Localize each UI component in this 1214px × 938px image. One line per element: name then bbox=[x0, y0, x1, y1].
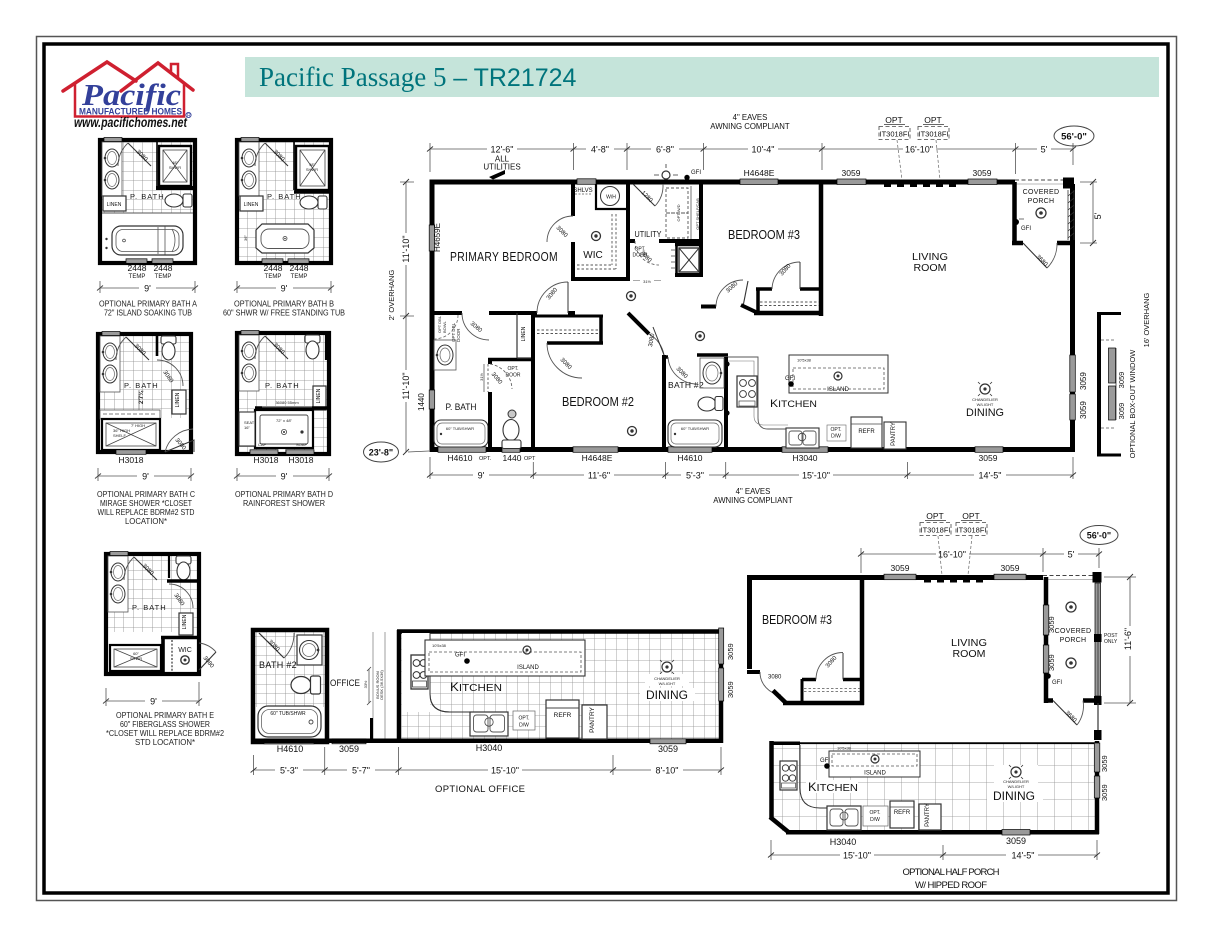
svg-text:OFFICE: OFFICE bbox=[330, 678, 360, 689]
svg-text:5'-7": 5'-7" bbox=[352, 766, 370, 776]
svg-text:OPT.: OPT. bbox=[869, 810, 880, 816]
svg-text:D/W: D/W bbox=[831, 434, 841, 440]
svg-text:72" x 48": 72" x 48" bbox=[276, 418, 293, 423]
svg-text:16'-10": 16'-10" bbox=[905, 145, 933, 155]
svg-text:5'-3": 5'-3" bbox=[686, 471, 704, 481]
svg-text:PORCH: PORCH bbox=[1060, 637, 1087, 644]
svg-text:PANTRY: PANTRY bbox=[589, 706, 596, 732]
svg-text:OPTIONAL PRIMARY BATH C: OPTIONAL PRIMARY BATH C bbox=[97, 490, 195, 499]
svg-text:8'-10": 8'-10" bbox=[656, 766, 679, 776]
svg-text:IT3018FI: IT3018FI bbox=[918, 130, 948, 139]
svg-text:3059: 3059 bbox=[339, 744, 359, 754]
svg-text:3059: 3059 bbox=[1117, 372, 1126, 389]
svg-text:11'-6": 11'-6" bbox=[588, 471, 610, 481]
svg-text:10'5x38: 10'5x38 bbox=[432, 643, 447, 648]
svg-text:31½: 31½ bbox=[643, 279, 651, 284]
svg-text:4'-8": 4'-8" bbox=[591, 145, 609, 155]
svg-text:9': 9' bbox=[478, 471, 485, 481]
svg-text:3059: 3059 bbox=[1006, 836, 1026, 846]
svg-text:ROOM: ROOM bbox=[914, 262, 947, 274]
svg-text:3059: 3059 bbox=[726, 643, 735, 660]
svg-text:2' OVERHANG: 2' OVERHANG bbox=[387, 270, 396, 321]
svg-text:TEMP: TEMP bbox=[129, 274, 146, 280]
svg-text:P. BATH: P. BATH bbox=[267, 192, 302, 201]
svg-text:12'-6": 12'-6" bbox=[491, 145, 514, 155]
svg-text:PORCH: PORCH bbox=[1028, 198, 1055, 205]
svg-text:14'-5": 14'-5" bbox=[979, 471, 1002, 481]
svg-text:www.pacifichomes.net: www.pacifichomes.net bbox=[74, 115, 187, 130]
svg-text:LINEN: LINEN bbox=[182, 614, 188, 629]
svg-text:56'-0": 56'-0" bbox=[1061, 132, 1087, 143]
svg-text:H3040: H3040 bbox=[792, 453, 817, 463]
svg-text:STD LOCATION*: STD LOCATION* bbox=[135, 738, 196, 747]
svg-text:REFR: REFR bbox=[894, 810, 911, 816]
svg-text:3059: 3059 bbox=[658, 744, 678, 754]
svg-text:H3018: H3018 bbox=[253, 455, 278, 465]
svg-text:BATH #2: BATH #2 bbox=[259, 660, 297, 670]
svg-text:LINEN: LINEN bbox=[175, 392, 181, 407]
svg-text:P. BATH: P. BATH bbox=[446, 402, 477, 412]
svg-text:9': 9' bbox=[281, 472, 288, 482]
svg-text:ISLAND: ISLAND bbox=[864, 771, 886, 777]
svg-text:31½: 31½ bbox=[479, 372, 484, 380]
svg-text:H3040: H3040 bbox=[830, 837, 857, 847]
svg-text:GFI: GFI bbox=[455, 653, 465, 659]
svg-text:16": 16" bbox=[244, 425, 250, 430]
svg-text:REFR: REFR bbox=[554, 712, 572, 719]
svg-text:6'-8": 6'-8" bbox=[656, 145, 674, 155]
svg-text:10'5x38: 10'5x38 bbox=[797, 358, 812, 363]
svg-text:IT3018FI: IT3018FI bbox=[956, 526, 986, 535]
svg-text:BOWL: BOWL bbox=[442, 320, 447, 333]
svg-text:DINING: DINING bbox=[993, 789, 1035, 803]
svg-text:16' OVERHANG: 16' OVERHANG bbox=[1142, 292, 1151, 347]
svg-text:KITCHEN: KITCHEN bbox=[770, 398, 817, 410]
svg-text:*CLOSET WILL REPLACE BDRM#2: *CLOSET WILL REPLACE BDRM#2 bbox=[106, 729, 224, 738]
svg-text:MIRAGE SHOWER *CLOSET: MIRAGE SHOWER *CLOSET bbox=[100, 499, 192, 508]
svg-text:CAP: CAP bbox=[258, 442, 267, 447]
svg-text:3059: 3059 bbox=[1079, 372, 1088, 390]
svg-text:P. BATH: P. BATH bbox=[265, 381, 300, 390]
svg-text:P. BATH: P. BATH bbox=[132, 603, 167, 612]
svg-text:H4610: H4610 bbox=[677, 453, 702, 463]
svg-text:W/ HIPPED ROOF: W/ HIPPED ROOF bbox=[915, 880, 987, 891]
svg-text:OPT.: OPT. bbox=[479, 456, 492, 462]
svg-text:11'-10": 11'-10" bbox=[401, 235, 411, 262]
svg-text:4" EAVES: 4" EAVES bbox=[733, 113, 768, 122]
svg-text:4" EAVES: 4" EAVES bbox=[736, 487, 771, 496]
svg-text:DOOR: DOOR bbox=[456, 328, 461, 342]
svg-text:60" SHWR W/ FREE STANDING TUB: 60" SHWR W/ FREE STANDING TUB bbox=[223, 309, 345, 318]
svg-text:OPT.: OPT. bbox=[507, 366, 518, 372]
svg-text:10'5x38: 10'5x38 bbox=[837, 746, 852, 751]
svg-text:LOCATION*: LOCATION* bbox=[125, 517, 168, 526]
svg-text:15'-10": 15'-10" bbox=[491, 766, 519, 776]
svg-text:10'-4": 10'-4" bbox=[752, 145, 775, 155]
svg-text:3059: 3059 bbox=[726, 681, 735, 698]
svg-text:3059: 3059 bbox=[1100, 755, 1109, 772]
svg-text:16'-10": 16'-10" bbox=[938, 550, 966, 560]
svg-text:REFR: REFR bbox=[858, 429, 875, 435]
svg-text:3059: 3059 bbox=[842, 168, 861, 178]
svg-text:ONLY: ONLY bbox=[1104, 639, 1118, 645]
svg-text:COVERED: COVERED bbox=[1023, 189, 1060, 196]
svg-text:7' HIGH: 7' HIGH bbox=[131, 423, 145, 428]
svg-text:H4610: H4610 bbox=[447, 453, 472, 463]
svg-text:15'-10": 15'-10" bbox=[843, 851, 871, 861]
svg-text:OPTIONAL HALF PORCH: OPTIONAL HALF PORCH bbox=[903, 867, 1000, 878]
svg-text:60" TUB/SHWR: 60" TUB/SHWR bbox=[681, 426, 709, 431]
svg-text:H4648E: H4648E bbox=[582, 453, 613, 463]
svg-text:H3018: H3018 bbox=[288, 455, 313, 465]
svg-text:1440: 1440 bbox=[503, 453, 522, 463]
svg-text:P. BATH: P. BATH bbox=[130, 192, 165, 201]
svg-text:60" FIBERGLASS SHOWER: 60" FIBERGLASS SHOWER bbox=[120, 720, 210, 729]
svg-text:SHLVS: SHLVS bbox=[573, 188, 592, 194]
svg-text:5': 5' bbox=[1093, 212, 1103, 219]
svg-text:W/H: W/H bbox=[606, 195, 616, 201]
svg-text:SHWR: SHWR bbox=[169, 165, 181, 170]
svg-text:H3040: H3040 bbox=[476, 743, 503, 753]
svg-text:9': 9' bbox=[281, 284, 288, 294]
svg-text:2448: 2448 bbox=[154, 263, 173, 273]
svg-text:COVERED: COVERED bbox=[1055, 628, 1092, 635]
svg-text:D/W: D/W bbox=[519, 723, 529, 729]
svg-text:W/LIGHT: W/LIGHT bbox=[659, 681, 676, 686]
svg-text:UTILITY: UTILITY bbox=[635, 230, 663, 239]
svg-text:5': 5' bbox=[1041, 145, 1048, 155]
svg-text:BEDROOM #2: BEDROOM #2 bbox=[562, 395, 634, 409]
svg-text:11'-10": 11'-10" bbox=[401, 372, 411, 399]
svg-text:14'-5": 14'-5" bbox=[1012, 851, 1035, 861]
svg-text:LINEN: LINEN bbox=[521, 326, 527, 341]
svg-text:LINEN: LINEN bbox=[107, 202, 122, 208]
svg-text:LINEN: LINEN bbox=[316, 388, 322, 403]
svg-text:3059: 3059 bbox=[1001, 563, 1020, 573]
svg-text:P. BATH: P. BATH bbox=[124, 381, 159, 390]
svg-text:SHWR: SHWR bbox=[130, 656, 142, 661]
svg-text:DOOR: DOOR bbox=[633, 253, 648, 259]
svg-text:Pacific Passage 5 – TR21724: Pacific Passage 5 – TR21724 bbox=[259, 62, 577, 92]
svg-text:GFI: GFI bbox=[785, 376, 795, 382]
svg-text:3059: 3059 bbox=[1047, 654, 1056, 671]
svg-text:SHWR: SHWR bbox=[306, 167, 318, 172]
svg-text:3059: 3059 bbox=[1117, 403, 1126, 420]
svg-text:36": 36" bbox=[243, 235, 248, 241]
svg-text:KITCHEN: KITCHEN bbox=[450, 680, 502, 694]
svg-text:56'-0": 56'-0" bbox=[1087, 531, 1111, 541]
svg-text:72" ISLAND SOAKING TUB: 72" ISLAND SOAKING TUB bbox=[104, 309, 192, 318]
svg-text:DESK (36.5X36): DESK (36.5X36) bbox=[379, 670, 384, 700]
svg-text:H4610: H4610 bbox=[277, 744, 304, 754]
svg-text:PRIMARY BEDROOM: PRIMARY BEDROOM bbox=[450, 250, 558, 264]
svg-text:DINING: DINING bbox=[966, 407, 1004, 419]
svg-text:OPTIONAL PRIMARY BATH D: OPTIONAL PRIMARY BATH D bbox=[235, 490, 333, 499]
svg-text:BATH #2: BATH #2 bbox=[668, 380, 704, 390]
svg-text:H4648E: H4648E bbox=[744, 168, 775, 178]
svg-text:IT3018FI: IT3018FI bbox=[920, 526, 950, 535]
svg-text:IT3018FI: IT3018FI bbox=[879, 130, 909, 139]
svg-text:OPT: OPT bbox=[962, 511, 979, 521]
svg-text:AWNING COMPLIANT: AWNING COMPLIANT bbox=[713, 496, 793, 505]
svg-text:H3018: H3018 bbox=[118, 455, 143, 465]
svg-text:3080: 3080 bbox=[768, 675, 782, 681]
svg-text:60" TUB/SHWR: 60" TUB/SHWR bbox=[446, 426, 474, 431]
svg-text:23'-8": 23'-8" bbox=[369, 448, 393, 458]
svg-text:9': 9' bbox=[142, 472, 149, 482]
svg-text:TEMP: TEMP bbox=[155, 274, 172, 280]
svg-text:GFI: GFI bbox=[820, 758, 830, 764]
svg-text:33½: 33½ bbox=[363, 680, 368, 688]
svg-text:OPT.: OPT. bbox=[518, 716, 529, 722]
svg-text:TEMP: TEMP bbox=[265, 274, 282, 280]
svg-text:WILL REPLACE BDRM#2 STD: WILL REPLACE BDRM#2 STD bbox=[98, 508, 195, 517]
svg-text:ISLAND: ISLAND bbox=[517, 665, 539, 671]
svg-text:UTILITIES: UTILITIES bbox=[483, 163, 520, 172]
svg-text:2448: 2448 bbox=[128, 263, 147, 273]
svg-text:OPT: OPT bbox=[524, 456, 536, 462]
svg-text:OPTIONAL OFFICE: OPTIONAL OFFICE bbox=[435, 784, 525, 795]
svg-text:5': 5' bbox=[1068, 550, 1075, 560]
svg-text:9': 9' bbox=[150, 697, 157, 707]
svg-text:OPT.: OPT. bbox=[830, 427, 841, 433]
svg-text:WIC: WIC bbox=[178, 647, 192, 654]
svg-text:AWNING COMPLIANT: AWNING COMPLIANT bbox=[710, 122, 790, 131]
svg-text:GFI: GFI bbox=[1021, 226, 1031, 232]
svg-text:OPTIONAL BOX-OUT WINDOW: OPTIONAL BOX-OUT WINDOW bbox=[1128, 349, 1137, 459]
svg-text:OPT W/D: OPT W/D bbox=[676, 204, 681, 221]
svg-text:11'-6": 11'-6" bbox=[1123, 628, 1133, 650]
svg-text:PANTRY: PANTRY bbox=[925, 803, 931, 827]
svg-text:ISLAND: ISLAND bbox=[827, 387, 849, 393]
svg-text:OPTIONAL PRIMARY BATH B: OPTIONAL PRIMARY BATH B bbox=[234, 300, 334, 309]
svg-text:DINING: DINING bbox=[646, 688, 688, 702]
svg-text:OPTIONAL PRIMARY BATH E: OPTIONAL PRIMARY BATH E bbox=[116, 711, 214, 720]
svg-text:RAINFOREST SHOWER: RAINFOREST SHOWER bbox=[243, 499, 325, 508]
svg-text:PANTRY: PANTRY bbox=[891, 422, 897, 446]
svg-text:H4659E: H4659E bbox=[433, 223, 442, 252]
svg-text:3059: 3059 bbox=[979, 453, 998, 463]
svg-text:KITCHEN: KITCHEN bbox=[808, 780, 858, 794]
svg-text:2448: 2448 bbox=[290, 263, 309, 273]
svg-text:ROOM: ROOM bbox=[953, 648, 986, 660]
svg-text:DOOR: DOOR bbox=[506, 373, 521, 379]
svg-text:OPT: OPT bbox=[885, 115, 902, 125]
svg-text:SHELF: SHELF bbox=[113, 433, 126, 438]
svg-text:3059: 3059 bbox=[973, 168, 992, 178]
svg-text:SOAP: SOAP bbox=[296, 442, 307, 447]
svg-text:BEDROOM #3: BEDROOM #3 bbox=[728, 228, 800, 242]
svg-text:LINEN: LINEN bbox=[244, 202, 259, 208]
svg-text:OPT: OPT bbox=[926, 511, 943, 521]
svg-text:1440: 1440 bbox=[417, 393, 426, 411]
svg-text:9': 9' bbox=[144, 284, 151, 294]
svg-text:TEMP: TEMP bbox=[291, 274, 308, 280]
svg-text:5'-3": 5'-3" bbox=[280, 766, 298, 776]
svg-text:WIC: WIC bbox=[583, 250, 602, 261]
svg-text:D/W: D/W bbox=[870, 817, 880, 823]
svg-text:36080 55mm: 36080 55mm bbox=[275, 400, 299, 405]
svg-text:3059: 3059 bbox=[1079, 401, 1088, 419]
svg-text:R: R bbox=[187, 113, 191, 119]
svg-text:OPT: OPT bbox=[924, 115, 941, 125]
svg-text:15'-10": 15'-10" bbox=[802, 471, 830, 481]
svg-text:60" TUB/SHWR: 60" TUB/SHWR bbox=[270, 711, 306, 717]
svg-text:3059: 3059 bbox=[891, 563, 910, 573]
svg-text:GFI: GFI bbox=[1052, 680, 1062, 686]
svg-text:3059: 3059 bbox=[1100, 784, 1109, 801]
svg-text:2448: 2448 bbox=[264, 263, 283, 273]
svg-text:OPTIONAL PRIMARY BATH A: OPTIONAL PRIMARY BATH A bbox=[99, 300, 197, 309]
svg-text:BEDROOM #3: BEDROOM #3 bbox=[762, 613, 832, 627]
svg-text:GFI: GFI bbox=[691, 170, 701, 176]
